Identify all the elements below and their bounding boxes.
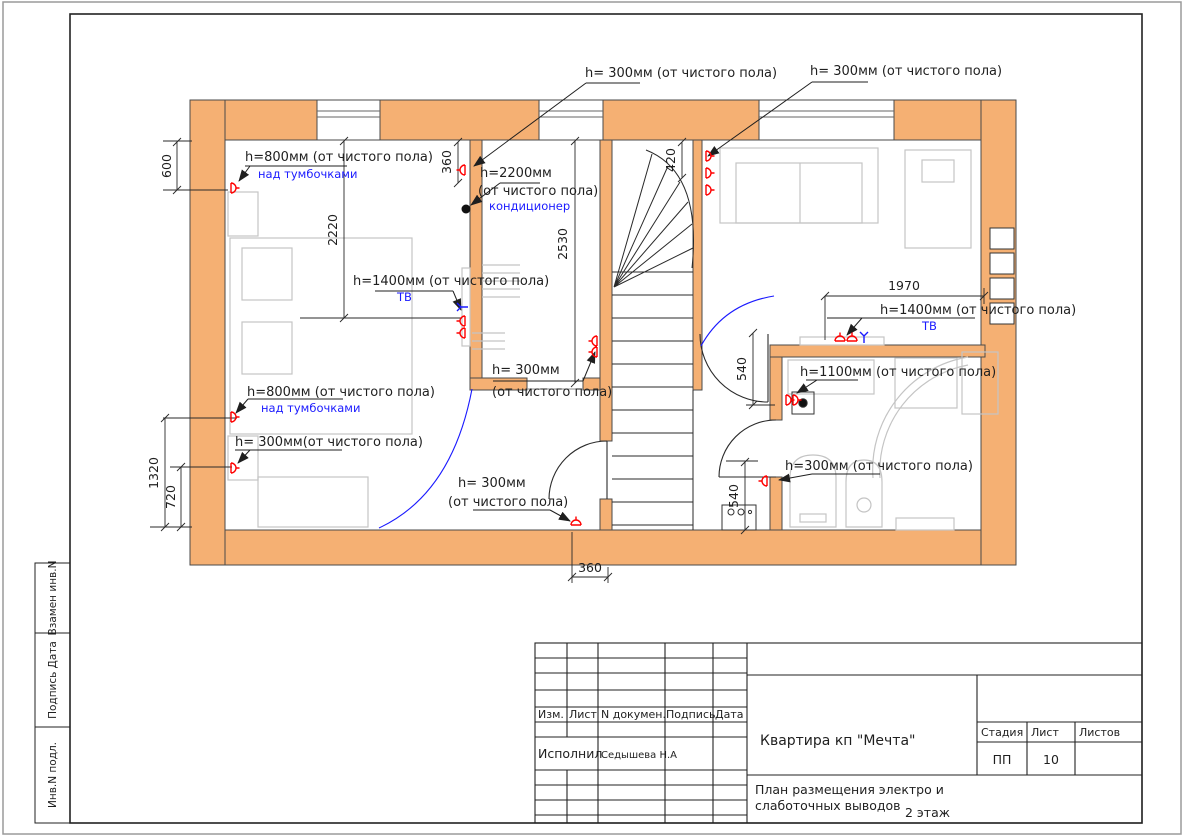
tb-doc-title-2: слаботочных выводов xyxy=(755,798,901,813)
annotation-tv-label-right: ТВ xyxy=(921,319,937,333)
frame-label-podpis-data: Подпись Дата xyxy=(47,641,59,719)
annotation-ac-label: кондиционер xyxy=(489,199,570,213)
dim-720: 720 xyxy=(163,485,178,509)
air-conditioner-point xyxy=(462,205,471,214)
tb-sheet-value: 10 xyxy=(1043,752,1059,767)
annotation-outlet-1100: h=1100мм (от чистого пола) xyxy=(800,365,996,380)
tb-executed-name: Седышева Н.А xyxy=(601,750,677,761)
dim-2220: 2220 xyxy=(325,214,340,246)
tb-col-list: Лист xyxy=(569,708,597,721)
tb-stage-label: Стадия xyxy=(981,726,1023,739)
dim-360-bottom: 360 xyxy=(578,560,602,575)
tb-col-ndoc: N докумен. xyxy=(601,708,666,721)
annotation-outlet-300-bathroom: h=300мм (от чистого пола) xyxy=(785,459,973,474)
annotation-ac-height-2: (от чистого пола) xyxy=(478,184,598,199)
annotation-tv-label-left: ТВ xyxy=(396,290,412,304)
dim-2530: 2530 xyxy=(555,228,570,260)
dim-600: 600 xyxy=(159,154,174,178)
dim-360-top: 360 xyxy=(439,150,454,174)
tb-floor: 2 этаж xyxy=(905,805,950,820)
tb-col-podpis: Подпись xyxy=(666,708,715,721)
drawing-sheet: 600 2220 360 2530 420 1970 540 540 1320 … xyxy=(0,0,1184,837)
annotation-outlet-800-lower: h=800мм (от чистого пола) xyxy=(247,385,435,400)
annotation-outlet-300-top-right: h= 300мм (от чистого пола) xyxy=(810,64,1002,79)
frame-label-vzamen: Взамен инв.N xyxy=(47,561,59,636)
tb-project-name: Квартира кп "Мечта" xyxy=(760,733,915,749)
tb-stage-value: ПП xyxy=(993,752,1012,767)
tb-col-data: Дата xyxy=(715,708,743,721)
tb-col-izm: Изм. xyxy=(538,708,564,721)
floor-plan-drawing: 600 2220 360 2530 420 1970 540 540 1320 … xyxy=(0,0,1184,837)
annotation-tv-1400-right: h=1400мм (от чистого пола) xyxy=(880,303,1076,318)
annotation-outlet-300-mid-2: (от чистого пола) xyxy=(492,385,612,400)
annotation-outlet-300-left: h= 300мм(от чистого пола) xyxy=(235,435,423,450)
annotation-outlet-300-top-left: h= 300мм (от чистого пола) xyxy=(585,66,777,81)
annotation-outlet-300-mid: h= 300мм xyxy=(492,363,560,378)
dim-420: 420 xyxy=(663,148,678,172)
frame-label-inv-podl: Инв.N подл. xyxy=(47,742,59,808)
dim-540-b: 540 xyxy=(726,484,741,508)
dim-540-a: 540 xyxy=(734,357,749,381)
annotation-above-nightstands-upper: над тумбочками xyxy=(258,167,357,181)
tb-sheet-label: Лист xyxy=(1031,726,1059,739)
annotation-above-nightstands-lower: над тумбочками xyxy=(261,401,360,415)
annotation-tv-1400-left: h=1400мм (от чистого пола) xyxy=(353,274,549,289)
annotation-outlet-300-bottom-2: (от чистого пола) xyxy=(448,495,568,510)
dim-1970: 1970 xyxy=(888,278,920,293)
tb-executed-label: Исполнил xyxy=(538,746,602,761)
annotation-ac-height: h=2200мм xyxy=(480,166,552,181)
tb-doc-title-1: План размещения электро и xyxy=(755,782,944,797)
dim-1320: 1320 xyxy=(146,457,161,489)
tb-sheets-label: Листов xyxy=(1079,726,1120,739)
annotation-outlet-800-upper: h=800мм (от чистого пола) xyxy=(245,150,433,165)
annotation-outlet-300-bottom: h= 300мм xyxy=(458,476,526,491)
